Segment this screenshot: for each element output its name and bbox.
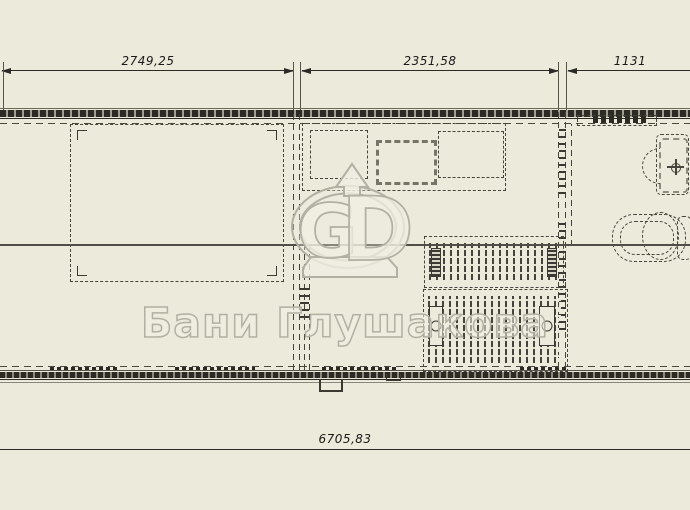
counter-center-box xyxy=(376,140,437,185)
corner-bracket xyxy=(267,266,277,276)
extension-line xyxy=(293,62,294,112)
wall-bottom-inner-line xyxy=(0,370,690,371)
logo-pedestal-icon xyxy=(303,257,397,277)
floor-grate-upper-slats xyxy=(429,243,557,280)
dimension-label-1: 2749,25 xyxy=(121,54,174,68)
corner-bracket xyxy=(77,266,87,276)
wall-bottom-hatch xyxy=(0,372,690,378)
wall-bottom-outer-line xyxy=(0,379,690,380)
dimension-label-2: 2351,58 xyxy=(403,54,456,68)
arrow-icon xyxy=(301,68,311,74)
anchor-ring-icon xyxy=(431,321,442,332)
logo-letter-g: G xyxy=(297,189,358,275)
room-left-equipment-outline xyxy=(70,124,284,282)
logo-letter-d: D xyxy=(341,178,414,281)
threshold-step xyxy=(319,379,343,392)
grate-end-plate-left xyxy=(431,248,441,277)
interior-wall-right-face-line xyxy=(571,124,572,246)
faucet-icon xyxy=(671,163,681,173)
toilet-tank xyxy=(677,216,690,260)
counter-left-box xyxy=(310,130,368,179)
logo-ellipse-inner xyxy=(300,194,396,261)
dimension-line-top-2 xyxy=(302,70,558,71)
extension-line xyxy=(300,62,301,112)
floor-plan-canvas: 2749,25 2351,58 1131 xyxy=(0,0,690,510)
arrow-icon xyxy=(567,68,577,74)
dimension-line-top-1 xyxy=(2,70,293,71)
dimension-label-3: 1131 xyxy=(614,54,647,68)
wall-bottom-edge-line xyxy=(0,382,690,383)
dimension-line-bottom xyxy=(0,449,690,450)
anchor-ring-icon xyxy=(542,321,553,332)
grate-anchor-right xyxy=(539,306,555,346)
corner-bracket xyxy=(267,130,277,140)
toilet-bowl xyxy=(642,212,679,260)
interior-wall-center-line1 xyxy=(293,112,294,370)
window-hatch-top-right xyxy=(593,116,648,123)
extension-line xyxy=(566,62,567,112)
corner-bracket xyxy=(77,130,87,140)
extension-line xyxy=(558,62,559,112)
counter-right-box xyxy=(438,131,504,178)
interior-wall-center-line2 xyxy=(299,112,300,370)
dimension-line-top-3 xyxy=(568,70,690,71)
section-line-horizontal xyxy=(0,244,690,246)
grate-anchor-left xyxy=(429,306,443,346)
interior-wall-center-hatch xyxy=(300,284,309,318)
extension-line xyxy=(3,62,4,112)
interior-wall-right-hatch-1 xyxy=(559,128,566,194)
wall-top-outer-line xyxy=(0,108,690,109)
threshold-notch xyxy=(386,374,401,381)
dimension-label-bottom: 6705,83 xyxy=(318,432,371,446)
interior-wall-center-line4 xyxy=(309,246,310,370)
grate-end-plate-right xyxy=(547,248,557,277)
